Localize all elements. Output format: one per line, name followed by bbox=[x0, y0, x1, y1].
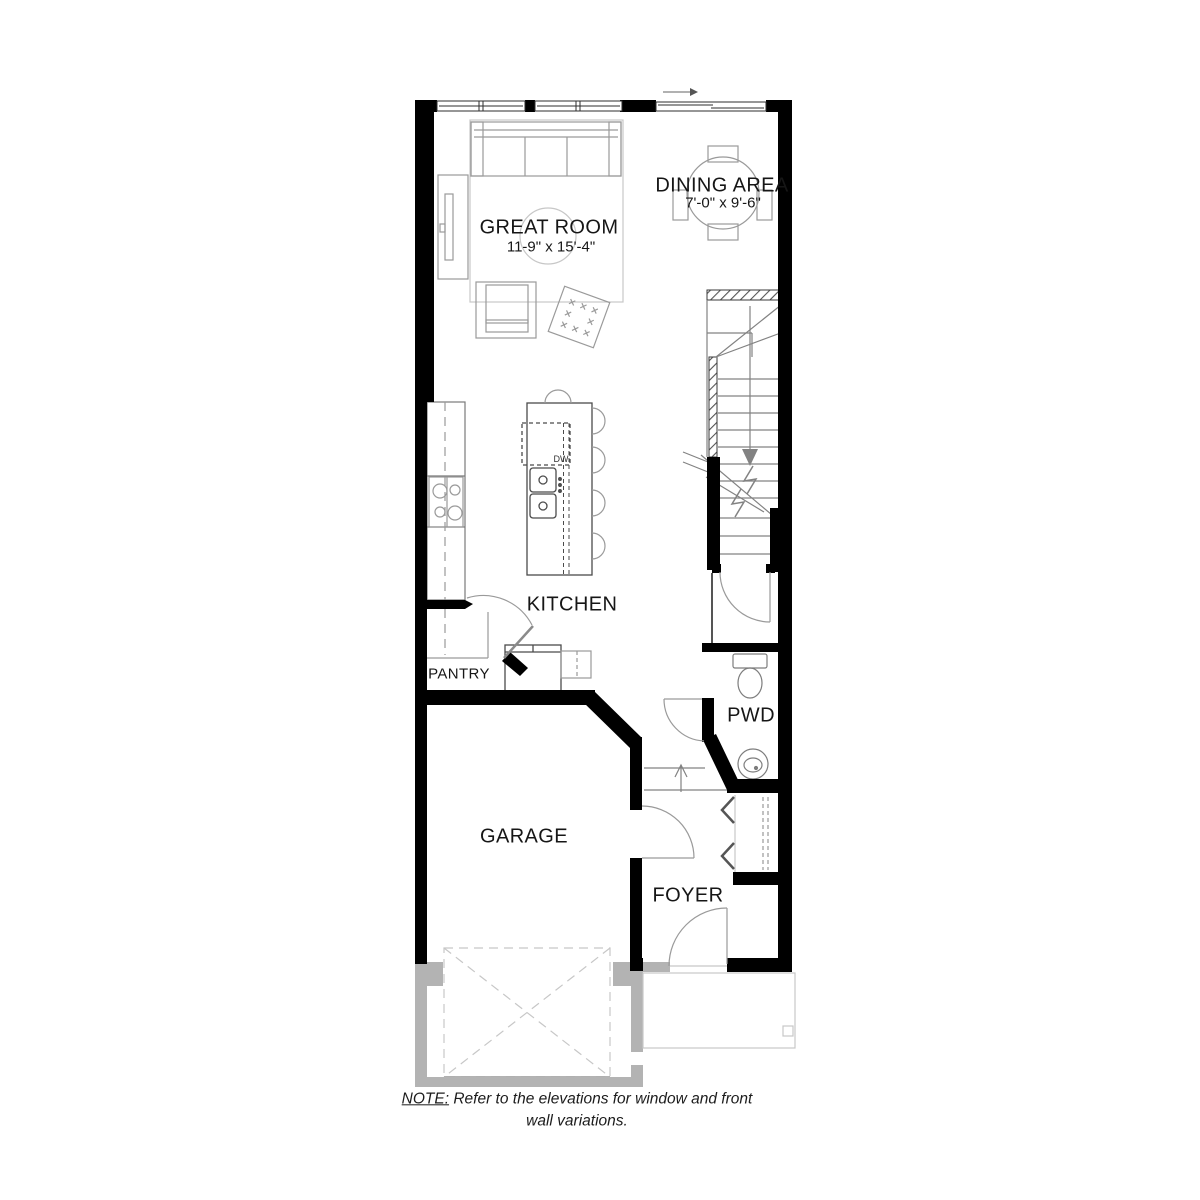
foyer-label: FOYER bbox=[653, 885, 724, 908]
powder-room-door bbox=[664, 699, 704, 741]
slider-arrow bbox=[690, 88, 698, 96]
garage-entry-door bbox=[642, 806, 694, 858]
coat-closet bbox=[722, 795, 768, 872]
stair-railing bbox=[709, 357, 717, 457]
window bbox=[535, 101, 622, 111]
plan-note-line1: NOTE: Refer to the elevations for window… bbox=[402, 1088, 753, 1110]
floor-plan-page: DW GREAT ROOM 11-9" x 15'-4" DINING AREA… bbox=[0, 0, 1200, 1200]
garage-label: GARAGE bbox=[480, 826, 568, 849]
great-room-dims: 11-9" x 15'-4" bbox=[507, 239, 595, 256]
bifold-door-icon bbox=[722, 797, 734, 823]
great-room-label: GREAT ROOM bbox=[480, 217, 619, 240]
sofa bbox=[471, 122, 621, 176]
pwd-label: PWD bbox=[727, 705, 775, 728]
bifold-door-icon bbox=[722, 843, 734, 869]
pantry-label: PANTRY bbox=[428, 666, 490, 683]
dining-chair-south bbox=[708, 224, 738, 240]
sliding-door bbox=[656, 88, 766, 111]
toilet bbox=[733, 654, 767, 698]
plan-note: NOTE: Refer to the elevations for window… bbox=[402, 1088, 753, 1131]
dining-area-dims: 7'-0" x 9'-6" bbox=[685, 195, 761, 212]
ottoman bbox=[548, 286, 610, 348]
pwd-sink bbox=[738, 749, 768, 779]
window bbox=[437, 101, 525, 111]
cooktop bbox=[429, 477, 463, 527]
pantry-shelves bbox=[419, 609, 488, 658]
dishwasher-label: DW bbox=[554, 454, 569, 464]
windows bbox=[437, 88, 766, 111]
stairs bbox=[683, 290, 791, 643]
stair-treads-lower bbox=[720, 518, 770, 554]
porch bbox=[643, 973, 795, 1048]
pantry-door bbox=[467, 596, 533, 658]
kitchen-fixtures bbox=[419, 390, 605, 692]
kitchen-island bbox=[522, 403, 592, 575]
area-rug bbox=[470, 120, 623, 302]
plan-note-prefix: NOTE: bbox=[402, 1090, 449, 1107]
kitchen-counter bbox=[427, 402, 465, 600]
garage-door bbox=[444, 948, 610, 1077]
stair-header bbox=[707, 290, 786, 300]
tv-console bbox=[438, 175, 468, 279]
armchair bbox=[476, 282, 536, 338]
stair-direction-arrow bbox=[742, 306, 758, 466]
plan-note-line2: wall variations. bbox=[402, 1110, 753, 1132]
bar-stools bbox=[545, 390, 605, 559]
kitchen-label: KITCHEN bbox=[527, 594, 618, 617]
island-sink bbox=[530, 468, 561, 518]
side-counter bbox=[561, 651, 591, 678]
understair-closet-door bbox=[720, 572, 770, 622]
dining-chair-north bbox=[708, 146, 738, 162]
front-door bbox=[669, 908, 727, 966]
